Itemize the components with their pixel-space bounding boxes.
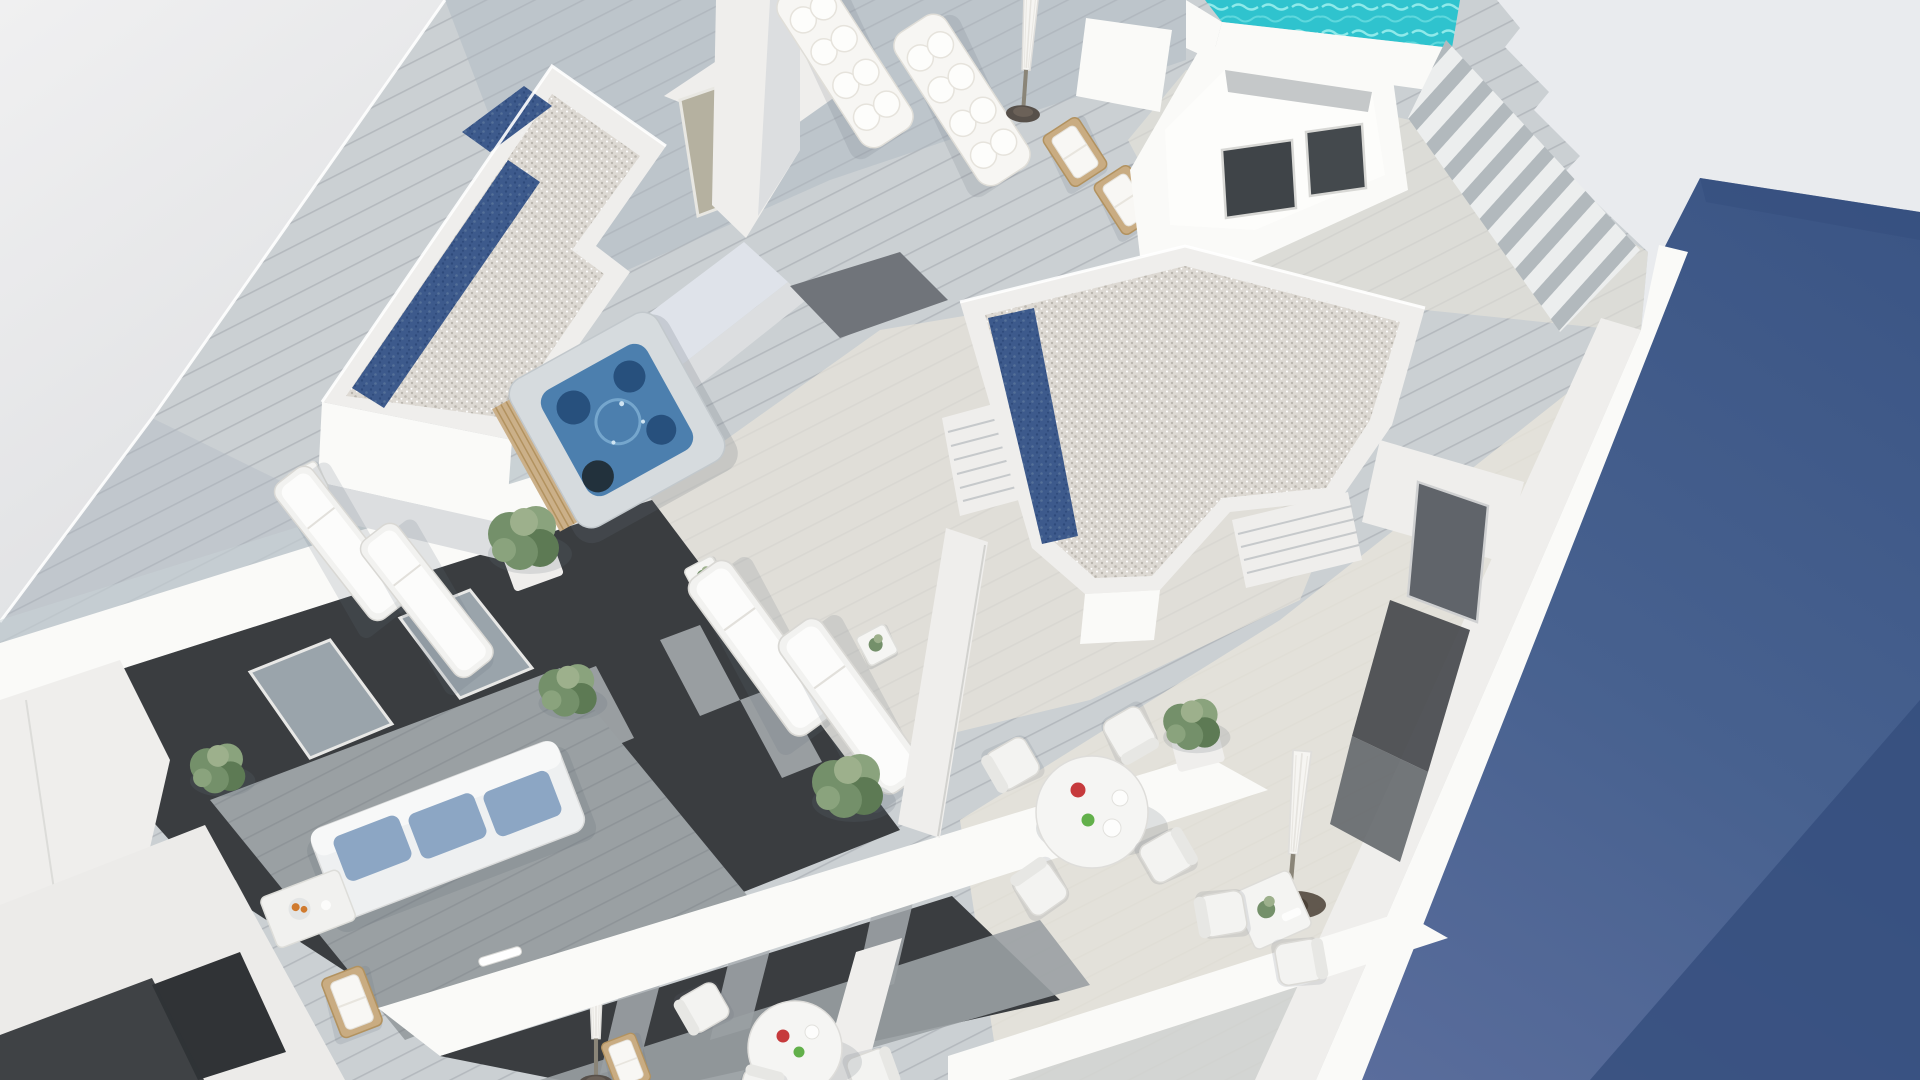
rooftop-render [0, 0, 1920, 1080]
volume-wall [1080, 590, 1160, 644]
lightwell-window [1222, 140, 1296, 218]
lightwell-window [1306, 124, 1366, 196]
round-dining-table [1036, 756, 1148, 868]
apple [1071, 783, 1086, 798]
render-canvas [0, 0, 1920, 1080]
lime-cup [794, 1047, 805, 1058]
apple [777, 1030, 790, 1043]
pool-side-wall [1076, 18, 1172, 112]
gray-door [1408, 482, 1488, 622]
lime-cup [1082, 814, 1095, 827]
